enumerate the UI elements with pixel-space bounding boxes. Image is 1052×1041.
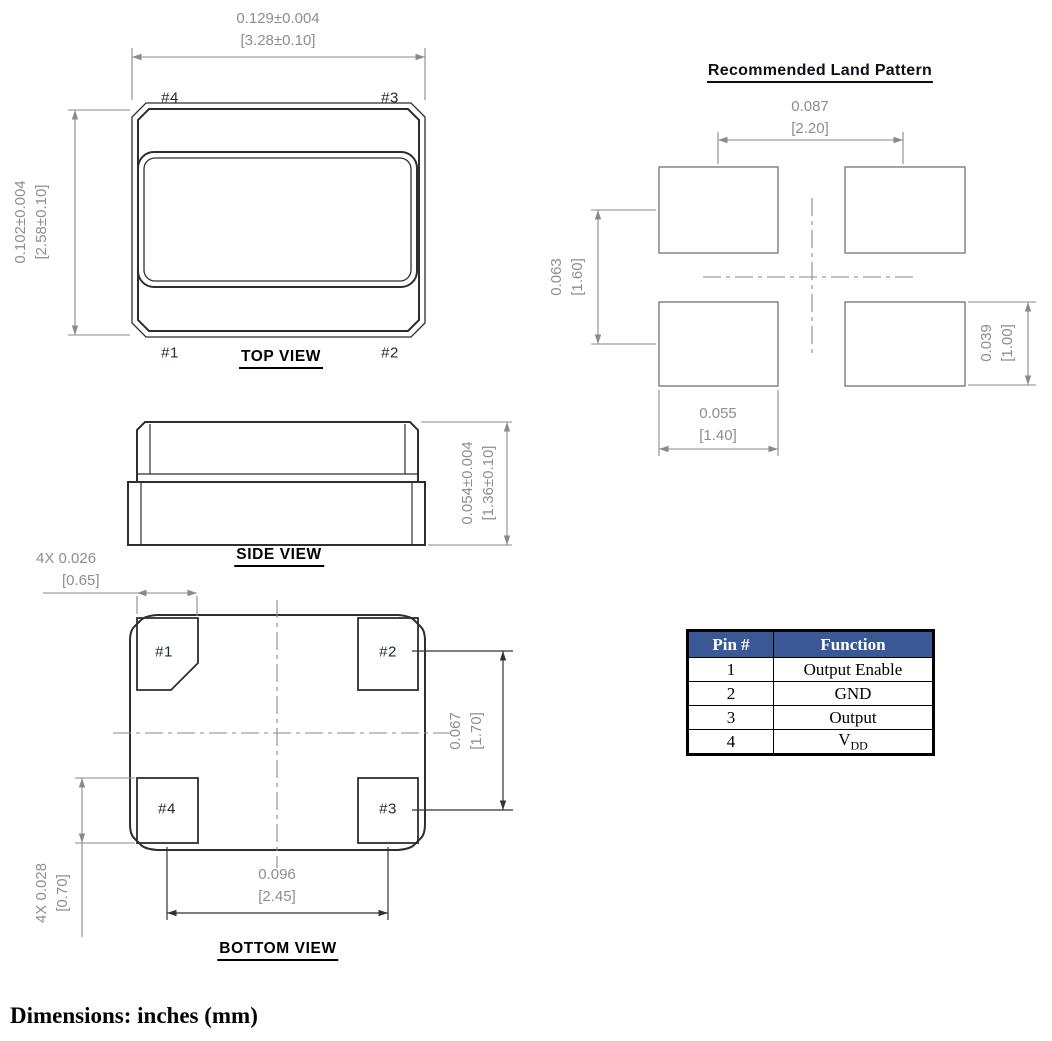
land-pattern-pad-height-mm: [1.00] [997,324,1018,362]
bottom-view-pin4-label: #4 [158,801,176,818]
pin-number: 4 [688,730,774,755]
vdd-subscript: DD [850,738,867,752]
pin-function-table: Pin # Function 1 Output Enable 2 GND 3 O… [686,629,935,756]
pin-number: 2 [688,682,774,706]
bottom-view-pad-height-mm: [0.70] [52,874,73,912]
top-view-pin4-label: #4 [161,90,179,107]
table-row: 4 VDD [688,730,934,755]
table-row: 3 Output [688,706,934,730]
table-row: 2 GND [688,682,934,706]
bottom-view-pitch-y-mm: [1.70] [466,712,487,750]
mechanical-drawing-page: 0.129±0.004 [3.28±0.10] 0.102±0.004 [2.5… [0,0,1052,1041]
pin-table-header-row: Pin # Function [688,631,934,658]
top-view-height-dim: 0.102±0.004 [2.58±0.10] [9,127,53,317]
land-pattern-pitch-y-mm: [1.60] [567,258,588,296]
bottom-view-pitch-x-mm: [2.45] [258,886,296,907]
pin-number: 3 [688,706,774,730]
bottom-view-pitch-x-inches: 0.096 [258,864,296,885]
bottom-view-pitch-y-dim: 0.067 [1.70] [444,661,488,801]
bottom-view-pad-width-mm: [0.65] [62,570,100,591]
bottom-view-pin1-label: #1 [155,644,173,661]
land-pattern-dimension-lines [591,132,1036,456]
land-pattern-pitch-y-dim: 0.063 [1.60] [545,207,589,347]
top-view-width-dim-inches: 0.129±0.004 [236,8,319,29]
top-view-outline [132,103,425,337]
side-view-height-dim: 0.054±0.004 [1.36±0.10] [456,388,500,578]
bottom-view-pin2-label: #2 [379,644,397,661]
land-pattern-pad-height-dim: 0.039 [1.00] [975,273,1019,413]
pin-function-vdd: VDD [774,730,934,755]
land-pattern-title: Recommended Land Pattern [707,62,933,83]
pin-function: Output Enable [774,658,934,682]
top-view-height-dim-mm: [2.58±0.10] [31,185,52,260]
pin-function: GND [774,682,934,706]
bottom-view-pitch-y-inches: 0.067 [445,712,466,750]
top-view-dimension-lines [68,48,425,335]
land-pattern-pad-width-inches: 0.055 [699,403,737,424]
top-view-pin3-label: #3 [381,90,399,107]
bottom-view-pad-width-inches: 4X 0.026 [36,548,96,569]
pin-table-header-function: Function [774,631,934,658]
bottom-view-centerlines [113,600,452,868]
dimensions-note: Dimensions: inches (mm) [10,1003,258,1029]
pin-function: Output [774,706,934,730]
top-view-pin2-label: #2 [381,345,399,362]
top-view-height-dim-inches: 0.102±0.004 [10,180,31,263]
side-view-height-dim-inches: 0.054±0.004 [457,441,478,524]
side-view-outline [128,422,425,545]
bottom-view-pad-height-inches: 4X 0.028 [31,863,52,923]
top-view-width-dim-mm: [3.28±0.10] [241,30,316,51]
pin-table-header-pin: Pin # [688,631,774,658]
side-view-title: SIDE VIEW [234,546,324,567]
land-pattern-pad-height-inches: 0.039 [976,324,997,362]
land-pattern-pitch-y-inches: 0.063 [546,258,567,296]
land-pattern-pad-width-mm: [1.40] [699,425,737,446]
pin-number: 1 [688,658,774,682]
top-view-pin1-label: #1 [161,345,179,362]
side-view-height-dim-mm: [1.36±0.10] [478,446,499,521]
land-pattern-pitch-x-inches: 0.087 [791,96,829,117]
top-view-title: TOP VIEW [239,348,323,369]
vdd-base: V [838,730,850,749]
bottom-view-title: BOTTOM VIEW [217,940,338,961]
table-row: 1 Output Enable [688,658,934,682]
land-pattern-pitch-x-mm: [2.20] [791,118,829,139]
drawing-linework [0,0,1052,1041]
bottom-view-pin3-label: #3 [379,801,397,818]
bottom-view-pad-height-dim: 4X 0.028 [0.70] [30,813,74,973]
